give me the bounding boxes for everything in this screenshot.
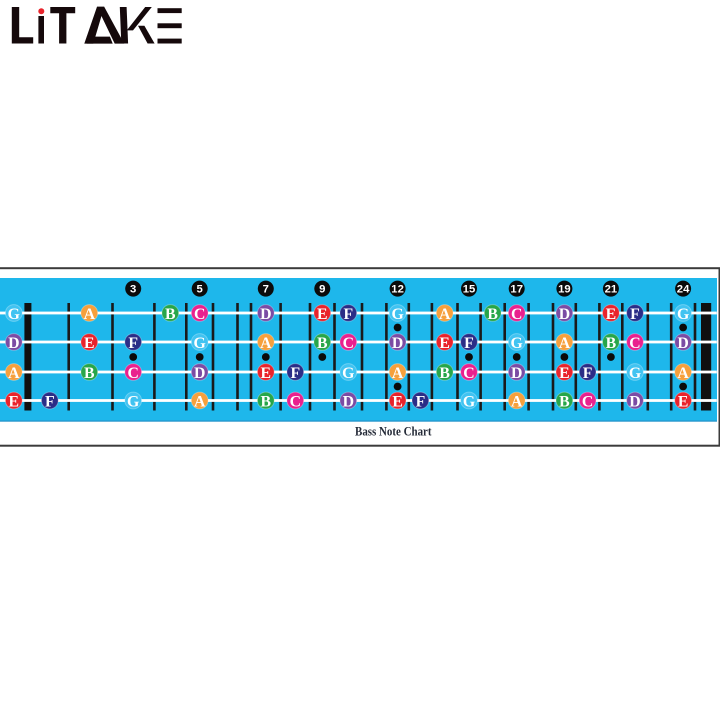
svg-text:15: 15	[463, 284, 476, 296]
svg-text:3: 3	[130, 284, 136, 296]
svg-text:D: D	[511, 365, 522, 382]
svg-text:E: E	[678, 393, 689, 410]
svg-text:A: A	[439, 306, 451, 323]
svg-text:G: G	[194, 335, 206, 352]
svg-text:C: C	[582, 393, 593, 410]
svg-text:B: B	[559, 393, 570, 410]
svg-text:12: 12	[391, 284, 404, 296]
svg-text:B: B	[606, 335, 617, 352]
svg-text:E: E	[606, 306, 617, 323]
svg-text:E: E	[439, 335, 450, 352]
svg-text:D: D	[677, 335, 688, 352]
svg-text:G: G	[463, 393, 475, 410]
svg-text:F: F	[290, 365, 300, 382]
svg-text:C: C	[127, 365, 138, 382]
svg-text:A: A	[194, 393, 206, 410]
svg-text:7: 7	[263, 284, 269, 296]
svg-text:B: B	[261, 393, 272, 410]
svg-text:B: B	[487, 306, 498, 323]
svg-text:21: 21	[605, 284, 618, 296]
svg-text:D: D	[194, 365, 205, 382]
svg-text:E: E	[84, 335, 95, 352]
svg-text:D: D	[260, 306, 271, 323]
svg-text:D: D	[559, 306, 570, 323]
svg-text:9: 9	[319, 284, 325, 296]
svg-text:A: A	[392, 365, 404, 382]
svg-text:G: G	[342, 365, 354, 382]
svg-text:A: A	[260, 335, 272, 352]
svg-text:A: A	[84, 306, 96, 323]
svg-text:G: G	[391, 306, 403, 323]
svg-text:G: G	[629, 365, 641, 382]
svg-text:D: D	[629, 393, 640, 410]
svg-text:E: E	[9, 393, 20, 410]
svg-text:C: C	[290, 393, 301, 410]
svg-text:C: C	[194, 306, 205, 323]
svg-text:E: E	[559, 365, 570, 382]
svg-text:B: B	[439, 365, 450, 382]
svg-text:F: F	[464, 335, 474, 352]
svg-text:A: A	[8, 365, 20, 382]
svg-text:A: A	[677, 365, 689, 382]
svg-text:D: D	[343, 393, 354, 410]
svg-text:A: A	[559, 335, 571, 352]
svg-text:19: 19	[558, 284, 571, 296]
svg-text:E: E	[392, 393, 403, 410]
svg-text:F: F	[128, 335, 138, 352]
svg-text:24: 24	[677, 284, 690, 296]
svg-text:17: 17	[510, 284, 523, 296]
svg-text:G: G	[677, 306, 689, 323]
svg-text:C: C	[511, 306, 522, 323]
svg-text:F: F	[45, 393, 55, 410]
svg-text:C: C	[343, 335, 354, 352]
svg-text:G: G	[127, 393, 139, 410]
svg-text:F: F	[416, 393, 426, 410]
svg-text:B: B	[317, 335, 328, 352]
svg-text:D: D	[392, 335, 403, 352]
svg-text:F: F	[630, 306, 640, 323]
svg-text:C: C	[629, 335, 640, 352]
svg-text:G: G	[511, 335, 523, 352]
svg-text:A: A	[511, 393, 523, 410]
svg-text:B: B	[84, 365, 95, 382]
svg-text:E: E	[317, 306, 328, 323]
svg-text:E: E	[261, 365, 272, 382]
svg-text:C: C	[463, 365, 474, 382]
svg-text:5: 5	[197, 284, 203, 296]
svg-text:G: G	[8, 306, 20, 323]
svg-text:Bass Note Chart: Bass Note Chart	[355, 423, 432, 438]
svg-text:F: F	[583, 365, 593, 382]
svg-text:F: F	[343, 306, 353, 323]
svg-text:B: B	[165, 306, 176, 323]
svg-text:D: D	[8, 335, 19, 352]
